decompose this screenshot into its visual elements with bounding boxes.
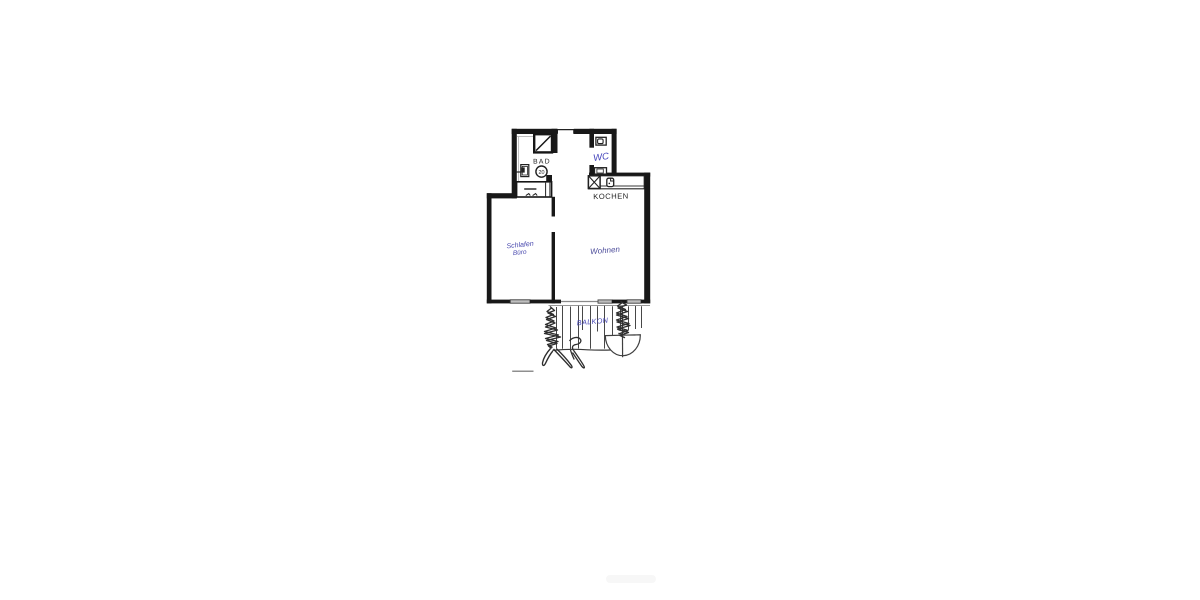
svg-text:20: 20: [538, 170, 544, 176]
svg-text:KOCHEN: KOCHEN: [593, 191, 629, 201]
svg-text:Büro: Büro: [513, 249, 528, 257]
svg-text:BAD: BAD: [533, 158, 551, 165]
svg-text:WC: WC: [592, 151, 609, 164]
